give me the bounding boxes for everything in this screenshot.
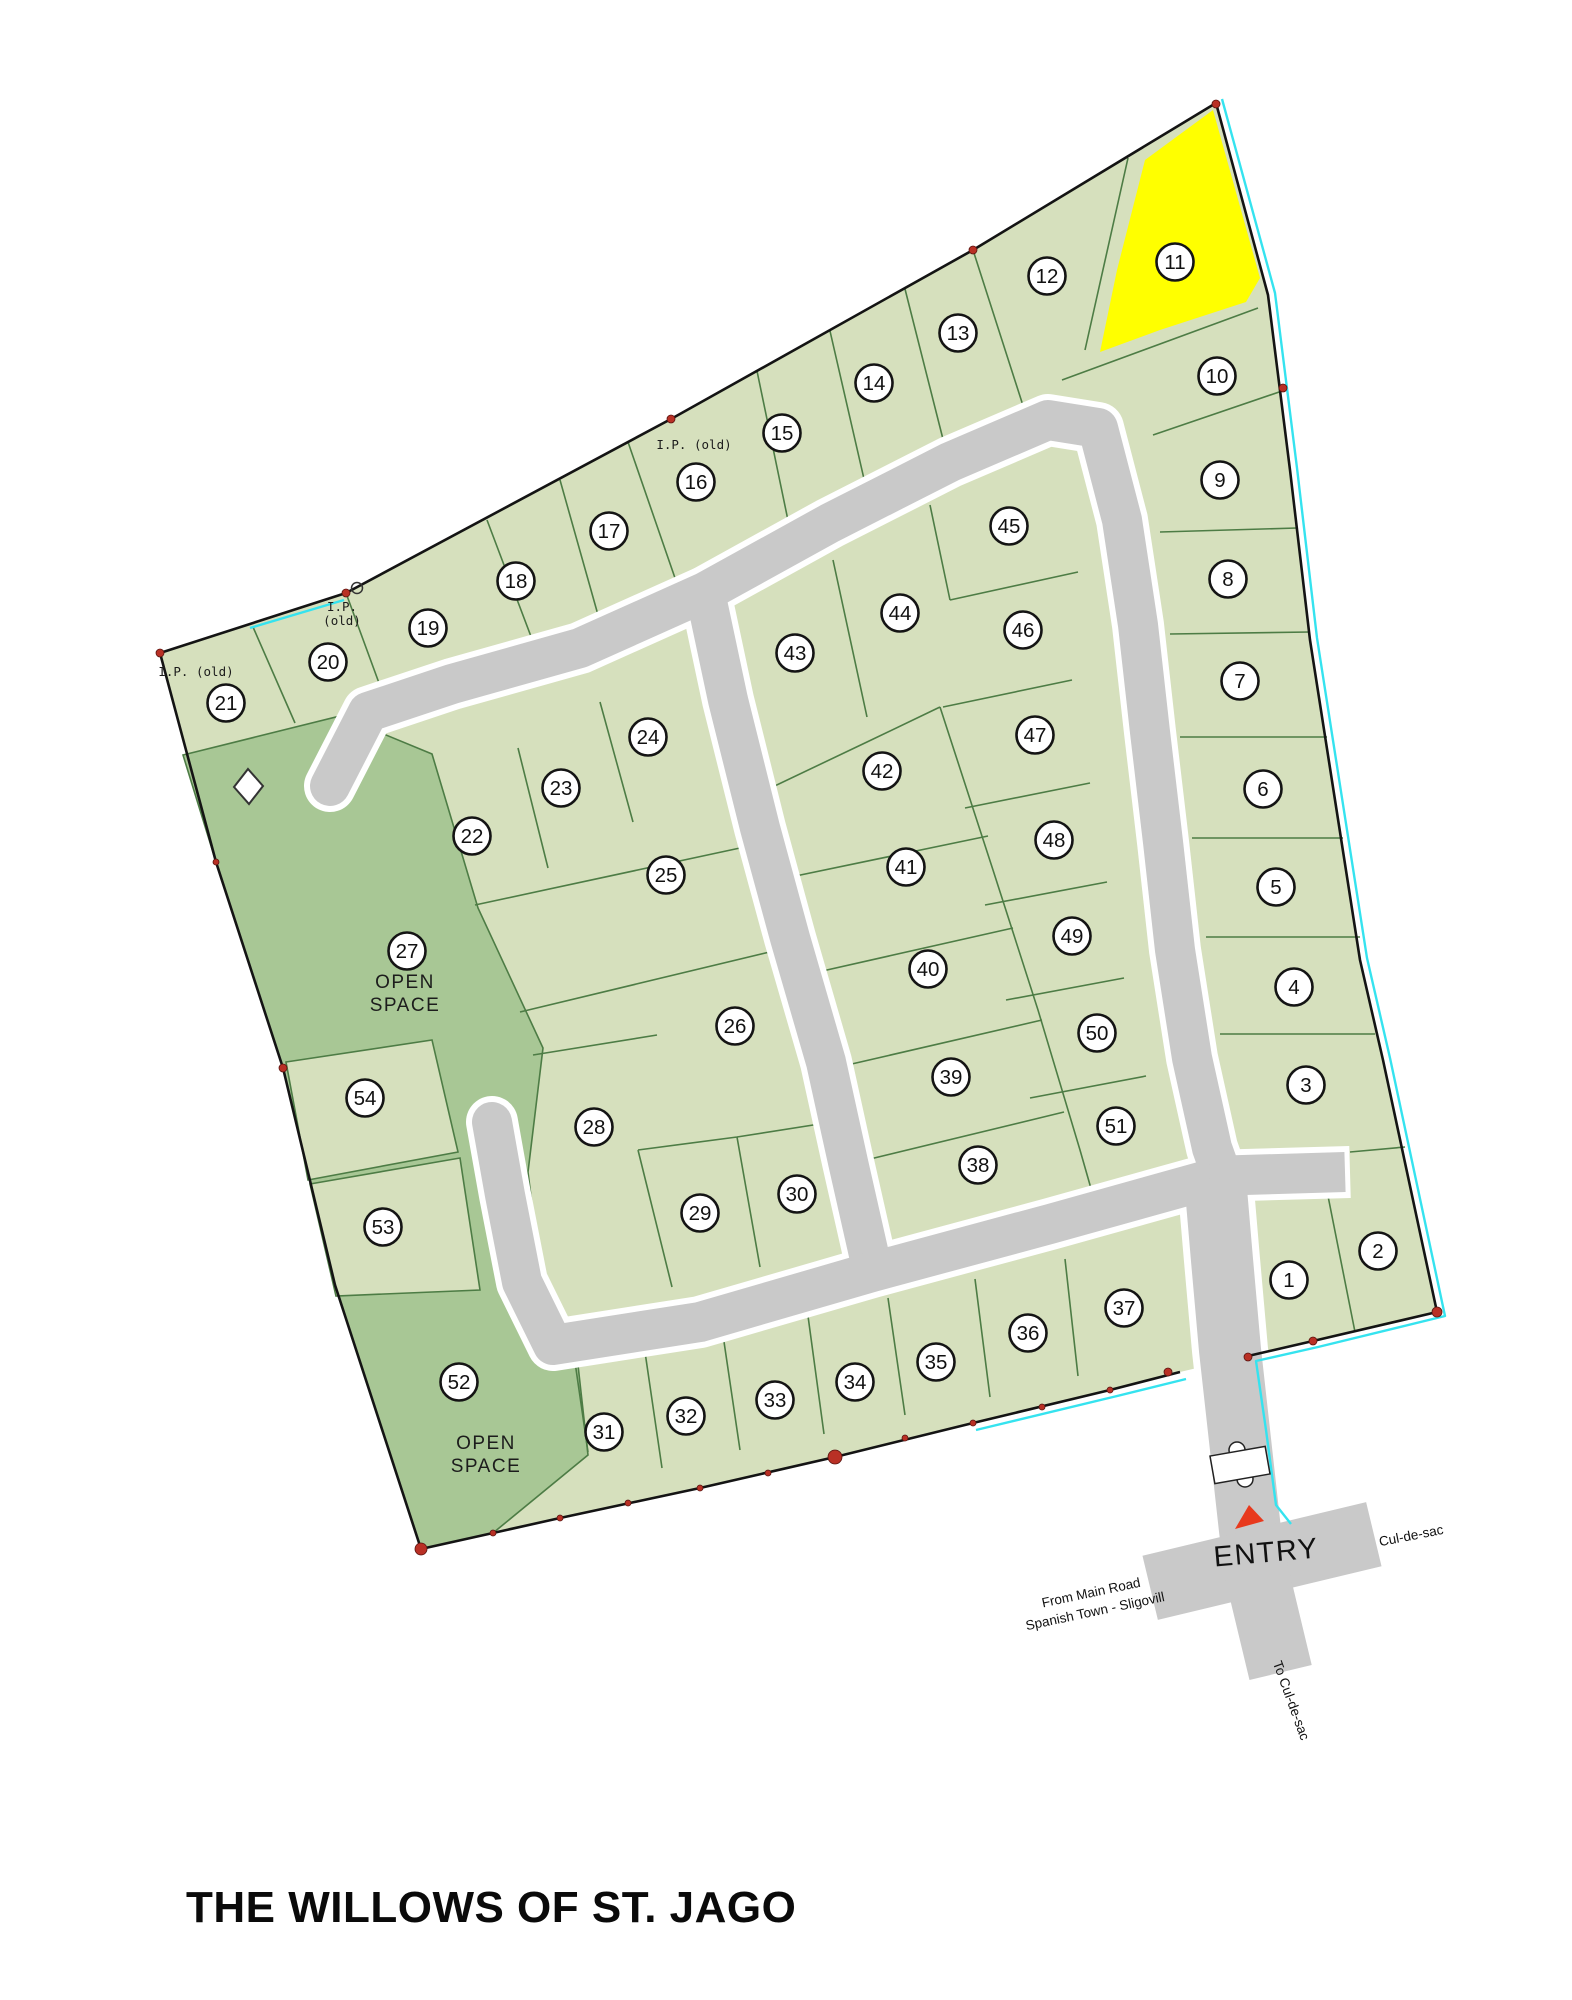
lot-marker-12: 12 xyxy=(1029,258,1066,295)
svg-text:37: 37 xyxy=(1113,1297,1136,1320)
lot-marker-42: 42 xyxy=(864,753,901,790)
lot-marker-17: 17 xyxy=(591,513,628,550)
svg-text:29: 29 xyxy=(689,1202,712,1225)
svg-text:53: 53 xyxy=(372,1216,395,1239)
svg-text:9: 9 xyxy=(1214,469,1225,492)
lot-marker-26: 26 xyxy=(717,1008,754,1045)
survey-marker-dot xyxy=(1164,1368,1172,1376)
svg-text:5: 5 xyxy=(1270,876,1281,899)
from-main-road-label: From Main RoadSpanish Town - Sligovill xyxy=(1020,1571,1166,1634)
lot-marker-19: 19 xyxy=(410,610,447,647)
survey-marker-dot xyxy=(1244,1353,1252,1361)
lot-marker-51: 51 xyxy=(1098,1108,1135,1145)
lot-marker-29: 29 xyxy=(682,1195,719,1232)
svg-text:43: 43 xyxy=(784,642,807,665)
lot-marker-14: 14 xyxy=(856,365,893,402)
lot-marker-10: 10 xyxy=(1199,358,1236,395)
lot-marker-8: 8 xyxy=(1210,561,1247,598)
svg-text:4: 4 xyxy=(1288,976,1299,999)
lot-marker-4: 4 xyxy=(1276,969,1313,1006)
lot-marker-48: 48 xyxy=(1036,822,1073,859)
site-plan-map: OPENSPACEOPENSPACEI.P. (old)I.P.(old)I.P… xyxy=(0,0,1572,2000)
entry-road xyxy=(1215,1178,1254,1562)
svg-text:25: 25 xyxy=(655,864,678,887)
survey-marker-dot xyxy=(697,1485,703,1491)
svg-text:19: 19 xyxy=(417,617,440,640)
lot-marker-31: 31 xyxy=(586,1414,623,1451)
lot-marker-16: 16 xyxy=(678,464,715,501)
svg-text:8: 8 xyxy=(1222,568,1233,591)
lot-marker-53: 53 xyxy=(365,1209,402,1246)
svg-text:30: 30 xyxy=(786,1183,809,1206)
lot-marker-13: 13 xyxy=(940,315,977,352)
svg-text:41: 41 xyxy=(895,856,918,879)
lot-marker-47: 47 xyxy=(1017,717,1054,754)
svg-text:39: 39 xyxy=(940,1066,963,1089)
lot-marker-52: 52 xyxy=(441,1364,478,1401)
lot-marker-39: 39 xyxy=(933,1059,970,1096)
survey-marker-dot xyxy=(765,1470,771,1476)
lot-marker-20: 20 xyxy=(310,644,347,681)
lot-marker-9: 9 xyxy=(1202,462,1239,499)
svg-text:28: 28 xyxy=(583,1116,606,1139)
svg-text:1: 1 xyxy=(1283,1269,1294,1292)
survey-marker-dot xyxy=(828,1450,842,1464)
lot-marker-43: 43 xyxy=(777,635,814,672)
lot-marker-40: 40 xyxy=(910,951,947,988)
lot-marker-2: 2 xyxy=(1360,1233,1397,1270)
lot-marker-25: 25 xyxy=(648,857,685,894)
lot-marker-15: 15 xyxy=(764,415,801,452)
survey-marker-dot xyxy=(279,1064,287,1072)
svg-text:42: 42 xyxy=(871,760,894,783)
lot-marker-38: 38 xyxy=(960,1147,997,1184)
survey-marker-dot xyxy=(490,1530,496,1536)
lot-marker-11: 11 xyxy=(1157,244,1194,281)
map-title: THE WILLOWS OF ST. JAGO xyxy=(186,1883,796,1932)
svg-text:6: 6 xyxy=(1257,778,1268,801)
lot-marker-23: 23 xyxy=(543,770,580,807)
svg-text:46: 46 xyxy=(1012,619,1035,642)
svg-text:34: 34 xyxy=(844,1371,867,1394)
svg-text:31: 31 xyxy=(593,1421,616,1444)
svg-text:2: 2 xyxy=(1372,1240,1383,1263)
svg-text:33: 33 xyxy=(764,1389,787,1412)
survey-marker-dot xyxy=(1039,1404,1045,1410)
lot-marker-7: 7 xyxy=(1222,663,1259,700)
lot-marker-35: 35 xyxy=(918,1344,955,1381)
svg-text:51: 51 xyxy=(1105,1115,1128,1138)
svg-text:20: 20 xyxy=(317,651,340,674)
survey-marker-dot xyxy=(667,415,675,423)
lot-marker-46: 46 xyxy=(1005,612,1042,649)
lot-marker-21: 21 xyxy=(208,685,245,722)
svg-text:44: 44 xyxy=(889,602,912,625)
lot-marker-49: 49 xyxy=(1054,918,1091,955)
lot-marker-1: 1 xyxy=(1271,1262,1308,1299)
lot-marker-18: 18 xyxy=(498,563,535,600)
lot-marker-41: 41 xyxy=(888,849,925,886)
survey-marker-dot xyxy=(1212,100,1220,108)
lot-marker-28: 28 xyxy=(576,1109,613,1146)
svg-text:32: 32 xyxy=(675,1405,698,1428)
survey-marker-dot xyxy=(213,859,219,865)
svg-text:35: 35 xyxy=(925,1351,948,1374)
lot-marker-24: 24 xyxy=(630,719,667,756)
svg-text:17: 17 xyxy=(598,520,621,543)
svg-text:15: 15 xyxy=(771,422,794,445)
to-cul-de-sac-label: To Cul-de-sac xyxy=(1270,1659,1313,1743)
svg-text:14: 14 xyxy=(863,372,886,395)
lot-marker-44: 44 xyxy=(882,595,919,632)
survey-marker-dot xyxy=(902,1435,908,1441)
svg-text:45: 45 xyxy=(998,515,1021,538)
svg-text:38: 38 xyxy=(967,1154,990,1177)
svg-text:40: 40 xyxy=(917,958,940,981)
svg-text:23: 23 xyxy=(550,777,573,800)
lot-marker-54: 54 xyxy=(347,1080,384,1117)
svg-text:16: 16 xyxy=(685,471,708,494)
svg-text:10: 10 xyxy=(1206,365,1229,388)
survey-marker-dot xyxy=(415,1543,427,1555)
svg-text:36: 36 xyxy=(1017,1322,1040,1345)
lot-marker-37: 37 xyxy=(1106,1290,1143,1327)
svg-text:24: 24 xyxy=(637,726,660,749)
lot-marker-36: 36 xyxy=(1010,1315,1047,1352)
svg-text:54: 54 xyxy=(354,1087,377,1110)
east-stub-road xyxy=(1210,1172,1345,1176)
lot-marker-32: 32 xyxy=(668,1398,705,1435)
survey-marker-dot xyxy=(342,589,350,597)
survey-marker-dot xyxy=(557,1515,563,1521)
svg-text:27: 27 xyxy=(396,940,419,963)
lot-marker-27: 27 xyxy=(389,933,426,970)
lot-marker-34: 34 xyxy=(837,1364,874,1401)
lot-marker-30: 30 xyxy=(779,1176,816,1213)
lot-marker-3: 3 xyxy=(1288,1067,1325,1104)
ip-old-label-mid: I.P.(old) xyxy=(323,599,361,628)
lot-marker-6: 6 xyxy=(1245,771,1282,808)
lot-marker-22: 22 xyxy=(454,818,491,855)
ip-old-label-west: I.P. (old) xyxy=(158,664,233,679)
cul-de-sac-label: Cul-de-sac xyxy=(1378,1522,1445,1549)
svg-text:3: 3 xyxy=(1300,1074,1311,1097)
svg-text:26: 26 xyxy=(724,1015,747,1038)
svg-text:12: 12 xyxy=(1036,265,1059,288)
svg-text:52: 52 xyxy=(448,1371,471,1394)
survey-marker-dot xyxy=(156,649,164,657)
lot-marker-50: 50 xyxy=(1079,1015,1116,1052)
survey-marker-dot xyxy=(969,246,977,254)
svg-text:50: 50 xyxy=(1086,1022,1109,1045)
svg-text:47: 47 xyxy=(1024,724,1047,747)
survey-marker-dot xyxy=(1309,1337,1317,1345)
svg-text:48: 48 xyxy=(1043,829,1066,852)
svg-text:13: 13 xyxy=(947,322,970,345)
svg-text:7: 7 xyxy=(1234,670,1245,693)
svg-text:11: 11 xyxy=(1164,251,1185,274)
survey-marker-dot xyxy=(625,1500,631,1506)
svg-text:18: 18 xyxy=(505,570,528,593)
svg-text:21: 21 xyxy=(215,692,238,715)
survey-marker-dot xyxy=(1432,1307,1442,1317)
ip-old-label-north: I.P. (old) xyxy=(656,437,731,452)
plat-map-page: OPENSPACEOPENSPACEI.P. (old)I.P.(old)I.P… xyxy=(0,0,1572,2000)
survey-marker-dot xyxy=(970,1420,976,1426)
survey-marker-dot xyxy=(1279,384,1287,392)
lot-marker-33: 33 xyxy=(757,1382,794,1419)
svg-text:22: 22 xyxy=(461,825,484,848)
svg-text:49: 49 xyxy=(1061,925,1084,948)
survey-marker-dot xyxy=(1107,1387,1113,1393)
lot-marker-5: 5 xyxy=(1258,869,1295,906)
lot-marker-45: 45 xyxy=(991,508,1028,545)
